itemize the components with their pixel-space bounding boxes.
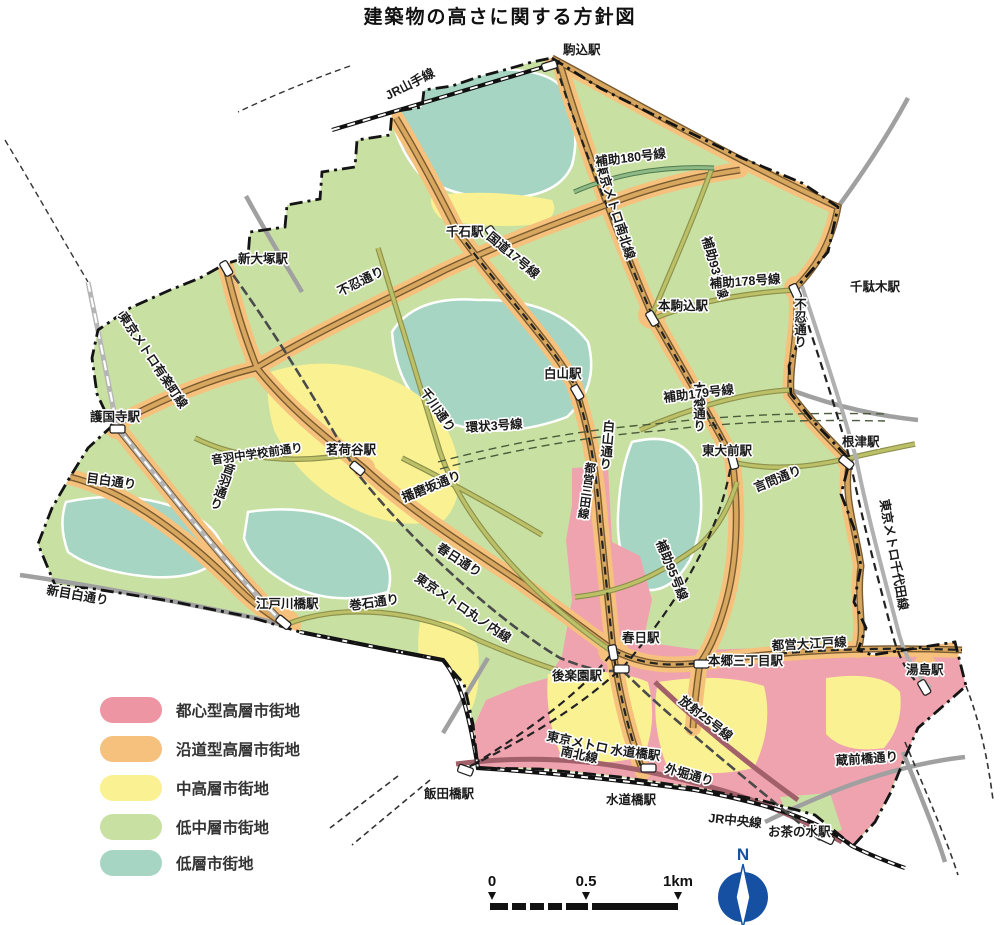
legend-label-low-mid: 低中層市街地 xyxy=(175,818,270,837)
label-station-hakusan: 白山駅 xyxy=(544,366,582,381)
label-station-edogawabashi: 江戸川橋駅 xyxy=(256,596,319,611)
legend-swatch-roadside xyxy=(100,736,162,762)
legend-swatch-mid-high xyxy=(100,775,162,801)
scale-zero: 0 xyxy=(488,873,496,890)
label-station-sendagi: 千駄木駅 xyxy=(850,279,901,294)
page-title: 建築物の高さに関する方針図 xyxy=(0,2,1000,29)
legend-label-roadside: 沿道型高層市街地 xyxy=(176,740,301,759)
policy-map-page: 建築物の高さに関する方針図 xyxy=(0,0,1000,925)
label-station-shin-otsuka: 新大塚駅 xyxy=(238,251,289,266)
legend-label-mid-high: 中高層市街地 xyxy=(176,779,270,798)
label-station-yushima: 湯島駅 xyxy=(906,662,944,677)
label-station-myogadani: 茗荷谷駅 xyxy=(326,442,377,457)
label-station-kasuga: 春日駅 xyxy=(621,630,660,645)
label-station-hon-komagome: 本駒込駅 xyxy=(658,298,709,313)
label-station-todaimae: 東大前駅 xyxy=(702,443,753,458)
scale-bar: 0 0.5 1km xyxy=(488,873,693,910)
label-station-ochanomizu: お茶の水駅 xyxy=(768,824,831,839)
label-station-hongo-sanchome: 本郷三丁目駅 xyxy=(708,653,784,668)
legend-swatch-low xyxy=(100,850,162,876)
compass: N xyxy=(718,845,768,925)
legend: 都心型高層市街地 沿道型高層市街地 中高層市街地 低中層市街地 低層市街地 xyxy=(100,697,301,876)
label-station-iidabashi: 飯田橋駅 xyxy=(423,786,475,801)
label-station-gokokuji: 護国寺駅 xyxy=(90,409,141,424)
label-station-suidobashi-jr: 水道橋駅 xyxy=(606,792,657,807)
label-station-nezu: 根津駅 xyxy=(842,434,880,449)
label-station-komagome: 駒込駅 xyxy=(563,42,601,57)
label-shinobazu-east: 不忍通り xyxy=(792,298,806,348)
scale-one: 1km xyxy=(663,873,693,890)
compass-n-label: N xyxy=(737,845,749,864)
policy-map-svg: JR山手線 東京メトロ南北線 東京メトロ有楽町線 東京メトロ千代田線 東京メトロ… xyxy=(0,0,1000,925)
legend-label-low: 低層市街地 xyxy=(175,854,254,873)
label-station-sengoku: 千石駅 xyxy=(446,224,484,239)
legend-swatch-urban-core xyxy=(100,697,162,723)
legend-label-urban-core: 都心型高層市街地 xyxy=(175,701,301,720)
label-station-korakuen: 後楽園駅 xyxy=(552,668,603,683)
scale-half: 0.5 xyxy=(576,873,597,890)
label-jr-chuo: JR中央線 xyxy=(708,810,763,831)
legend-swatch-low-mid xyxy=(100,814,162,840)
